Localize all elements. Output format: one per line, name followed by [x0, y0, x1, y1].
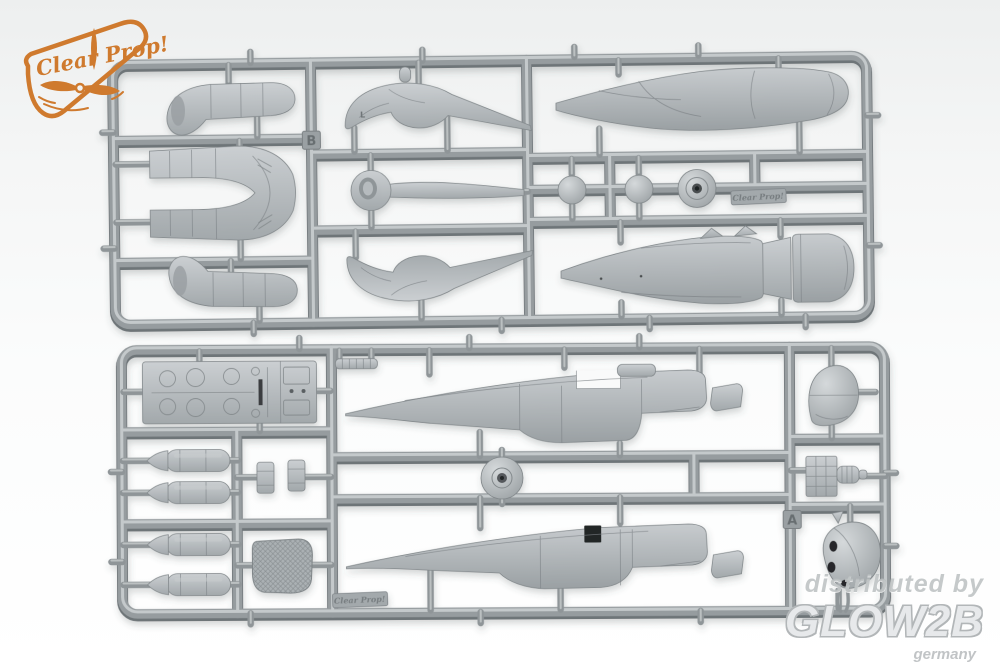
sprue-b-nameplate: Clear Prop!: [731, 188, 787, 205]
part-pylon-2: [288, 460, 305, 491]
sprues-illustration: L Clear Prop!: [0, 0, 1000, 667]
sprue-a-nameplate: Clear Prop!: [332, 592, 388, 608]
part-radiator-grille: [252, 539, 312, 593]
part-flap-lower: [711, 551, 743, 578]
part-nacelle-side-left: L: [345, 82, 532, 133]
part-wing-center-section: [149, 145, 296, 241]
part-blister-2: [625, 175, 653, 203]
sprue-letter-tag-b: B: [302, 131, 320, 149]
svg-text:Clear Prop!: Clear Prop!: [334, 594, 386, 606]
sprue-a: A Clear Prop!: [110, 333, 896, 625]
part-cowl-front: [823, 511, 881, 611]
part-bomb-1: [147, 449, 230, 471]
part-pylon-1: [257, 462, 274, 493]
part-flap-upper: [710, 384, 742, 411]
sprue-letter-tag-a: A: [783, 510, 801, 528]
part-fuselage-bottom-half: [560, 225, 854, 306]
svg-text:B: B: [306, 134, 316, 149]
part-blister-1: [558, 176, 586, 204]
part-bomb-3: [147, 533, 230, 555]
part-cockpit-floor-panel: [142, 361, 316, 424]
part-nacelle-side-right: [347, 250, 534, 301]
sprue-b: L Clear Prop!: [101, 42, 880, 336]
part-engine-block: [806, 456, 867, 496]
part-engine-disc: [678, 169, 716, 207]
part-cowling-top: [167, 82, 296, 135]
part-bomb-4: [147, 573, 230, 595]
part-mark-l: L: [360, 111, 365, 120]
part-wheel-hub: [481, 457, 523, 499]
part-step-strip: [335, 359, 377, 369]
part-wing-lower-half: [346, 524, 707, 590]
svg-text:A: A: [787, 513, 797, 528]
part-bomb-2: [147, 481, 230, 503]
part-spinner-backplate: [351, 169, 524, 211]
part-fuselage-top-half: [556, 67, 849, 132]
model-kit-sprues-photo: L Clear Prop!: [0, 0, 1000, 667]
part-small-peg: [399, 67, 410, 82]
part-wing-upper-half: [345, 364, 706, 444]
part-cowling-dome: [809, 365, 859, 425]
